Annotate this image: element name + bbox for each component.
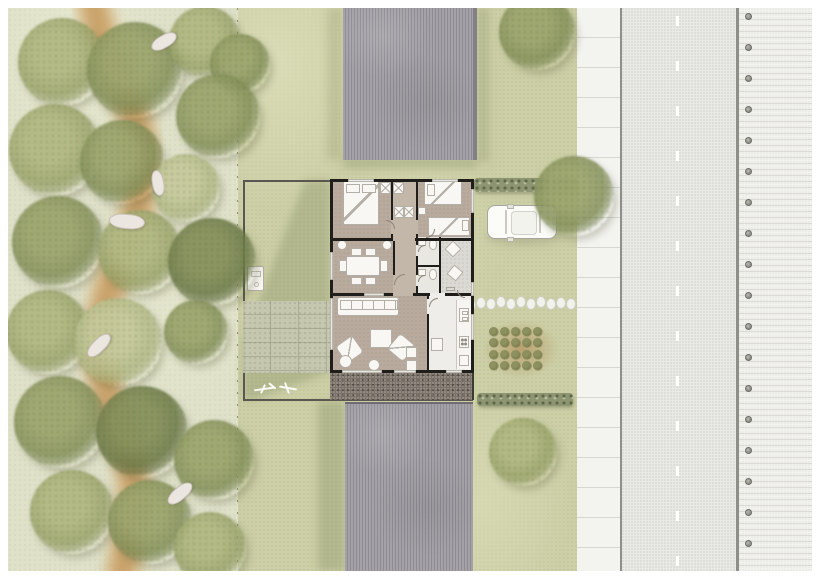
- sketch-plant-right: [277, 380, 299, 396]
- window: [432, 179, 458, 182]
- pillow: [346, 184, 360, 193]
- dining-chair: [351, 277, 362, 285]
- window: [330, 298, 333, 350]
- entry-door-opening: [471, 282, 474, 296]
- window: [471, 189, 474, 213]
- wall-interior: [393, 241, 395, 275]
- double-bed: [343, 181, 379, 225]
- potted-plant-icon: [337, 240, 347, 250]
- car-mirror-top: [507, 204, 514, 209]
- toilet: [429, 269, 437, 280]
- corridor-floor: [393, 238, 416, 296]
- porch-detail: [446, 287, 455, 291]
- pillow: [362, 184, 376, 193]
- sink: [418, 269, 426, 276]
- building-roof-north: [343, 8, 477, 160]
- hedge-south: [477, 393, 573, 406]
- page-margin-bottom: [0, 571, 820, 579]
- page-margin-top: [0, 0, 820, 8]
- potted-plant-icon: [382, 240, 392, 250]
- car-mirror-bottom: [507, 237, 514, 242]
- car-rear-window-line: [539, 211, 541, 233]
- window: [348, 179, 374, 182]
- page-margin-left: [0, 0, 8, 579]
- dining-chair: [351, 248, 362, 256]
- bench-detail-dot: [254, 282, 259, 287]
- dining-chair: [365, 248, 376, 256]
- wardrobe-icon: [404, 206, 414, 218]
- house-floorplan: [330, 179, 474, 373]
- single-bed: [428, 217, 470, 236]
- sketch-plant-left: [254, 382, 278, 396]
- pouf: [339, 355, 352, 368]
- dining-chair: [380, 260, 388, 272]
- bench-detail: [251, 271, 261, 277]
- nightstand: [418, 207, 426, 215]
- patio-pavers: [243, 301, 330, 373]
- pillow: [427, 184, 435, 196]
- building-roof-south: [345, 402, 473, 571]
- wardrobe-icon: [393, 182, 404, 194]
- site-plan-canvas: [0, 0, 820, 579]
- kitchen-appliance: [459, 355, 469, 366]
- car-windshield-line: [505, 210, 507, 234]
- window: [330, 252, 333, 280]
- sofa: [337, 297, 399, 316]
- dining-chair: [365, 277, 376, 285]
- side-table: [406, 347, 417, 358]
- garden-soil: [483, 320, 559, 378]
- wall-interior: [416, 265, 441, 267]
- plot-boundary-top: [243, 180, 331, 182]
- terrace-paving: [330, 373, 474, 400]
- car-roof: [511, 211, 537, 235]
- dining-chair: [339, 260, 347, 272]
- pillow: [462, 220, 469, 231]
- wardrobe-icon: [380, 182, 391, 194]
- hedge-north: [474, 178, 577, 192]
- kitchen-sink: [459, 308, 469, 322]
- page-margin-right: [812, 0, 820, 579]
- single-bed: [424, 181, 462, 205]
- kitchen-table: [431, 338, 443, 351]
- garden-bench: [247, 266, 264, 291]
- stove: [459, 336, 469, 348]
- window: [471, 314, 474, 340]
- parked-car: [487, 205, 557, 239]
- wardrobe-icon: [394, 206, 404, 218]
- dining-table: [346, 256, 380, 276]
